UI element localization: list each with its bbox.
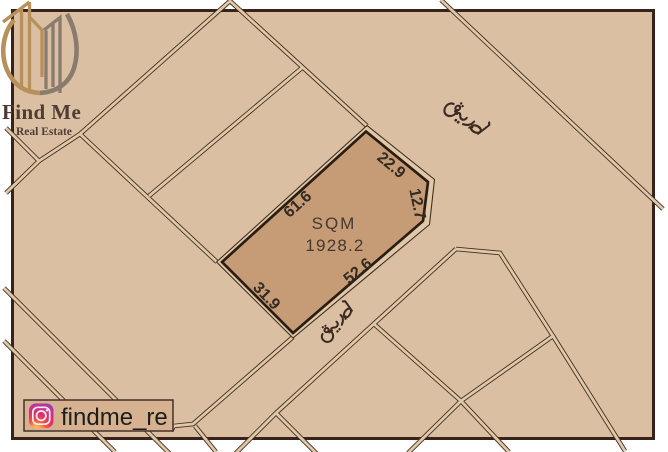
svg-text:Real Estate: Real Estate <box>16 126 72 138</box>
svg-text:1928.2: 1928.2 <box>305 236 364 255</box>
svg-text:SQM: SQM <box>312 214 357 233</box>
svg-text:findme_re: findme_re <box>61 404 168 431</box>
svg-text:Find Me: Find Me <box>2 100 81 124</box>
